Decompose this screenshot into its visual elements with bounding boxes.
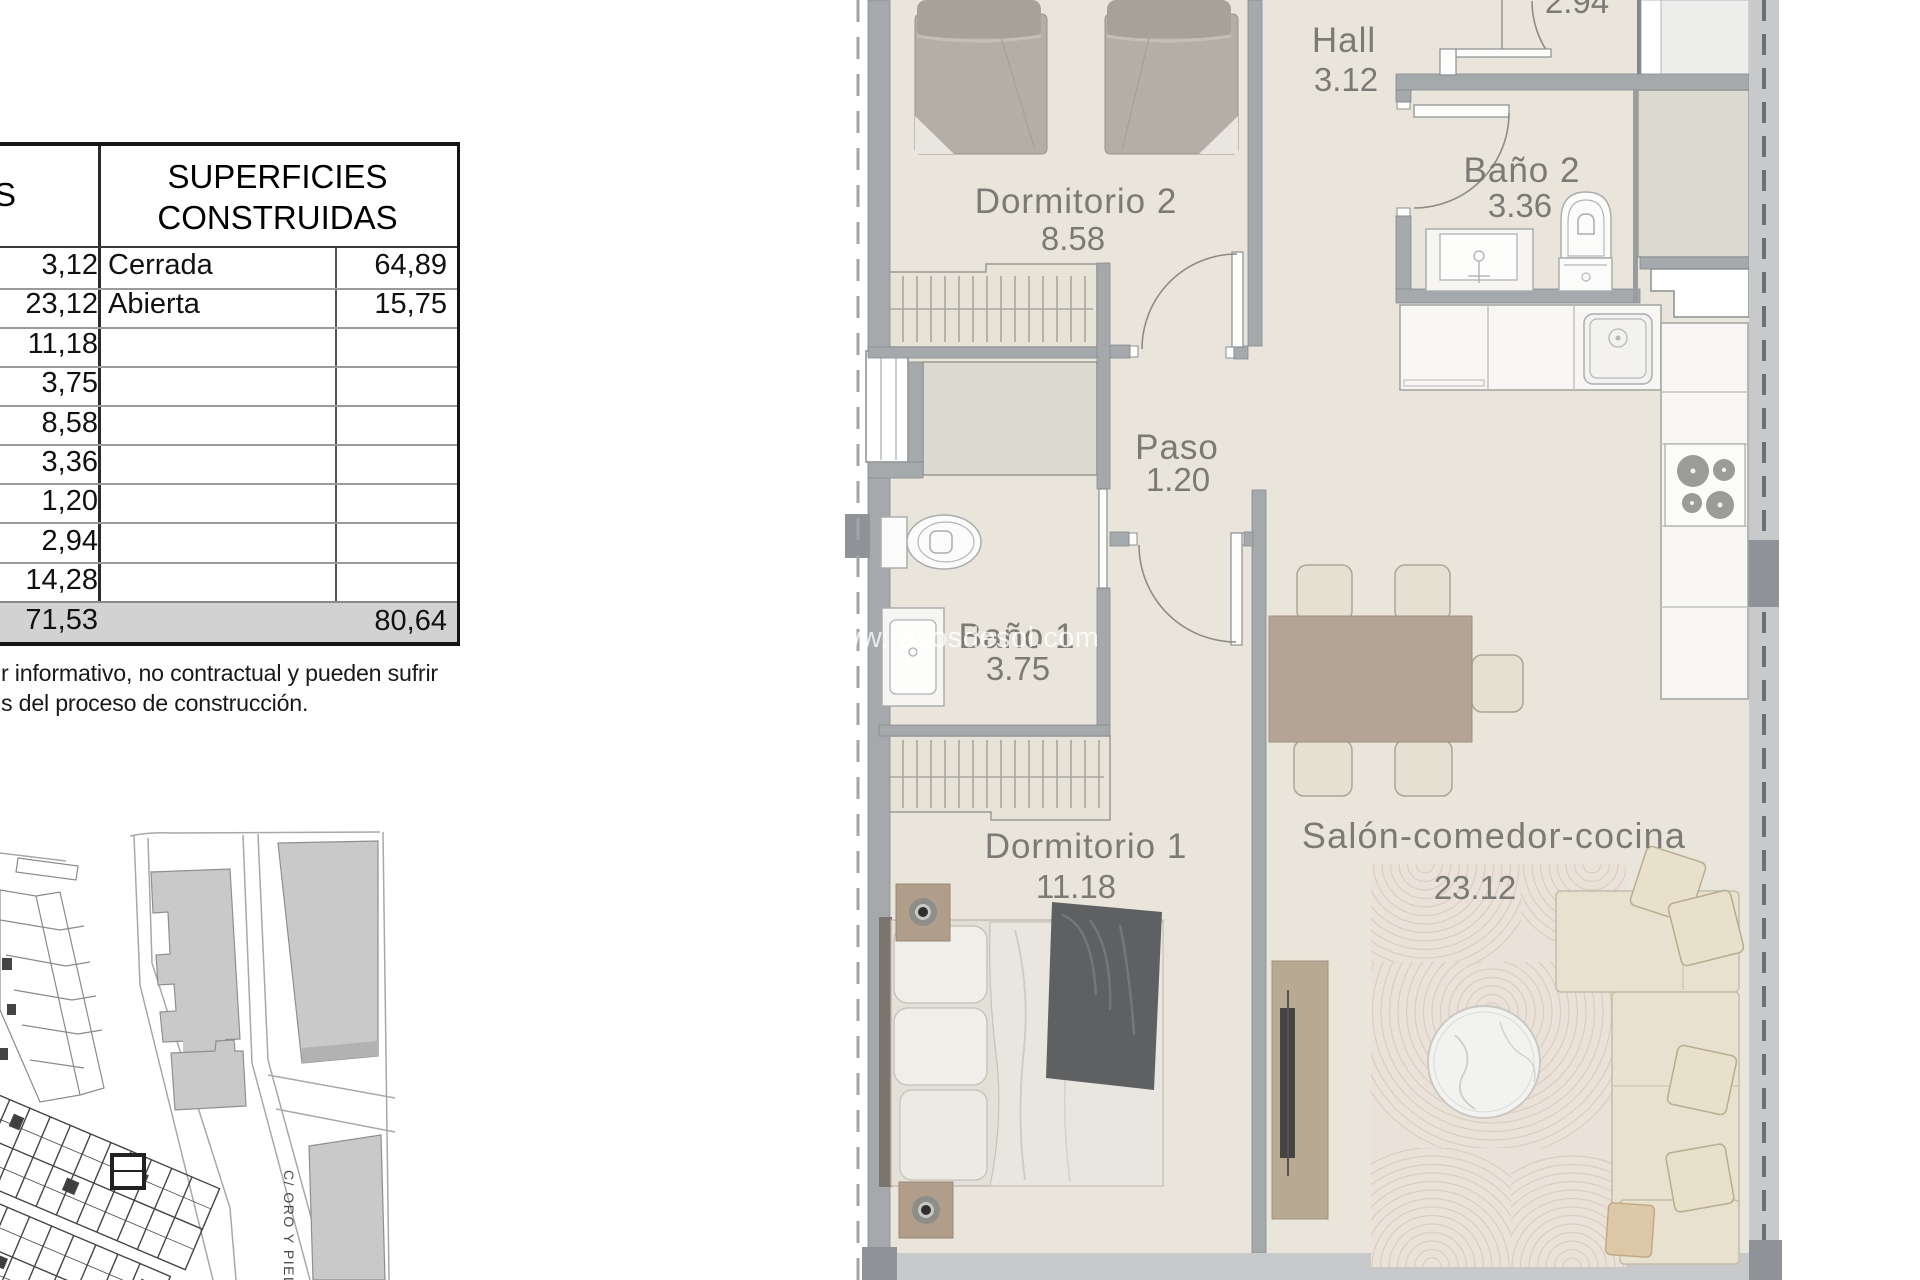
svg-text:Baño 2: Baño 2	[1464, 151, 1581, 190]
svg-text:1.20: 1.20	[1146, 461, 1210, 498]
svg-text:3.12: 3.12	[1314, 61, 1378, 98]
svg-text:Hall: Hall	[1312, 21, 1376, 60]
svg-text:11.18: 11.18	[1036, 868, 1116, 905]
svg-text:3.36: 3.36	[1488, 187, 1552, 224]
svg-text:3.75: 3.75	[986, 650, 1050, 687]
svg-text:Dormitorio 1: Dormitorio 1	[985, 827, 1188, 866]
svg-text:Salón-comedor-cocina: Salón-comedor-cocina	[1302, 815, 1686, 856]
svg-text:8.58: 8.58	[1041, 220, 1105, 257]
svg-text:C/ ORO Y PIEL: C/ ORO Y PIEL	[281, 1170, 297, 1280]
svg-text:2.94: 2.94	[1545, 0, 1609, 20]
svg-text:www.rayosdesol.com: www.rayosdesol.com	[817, 622, 1099, 654]
svg-text:23.12: 23.12	[1434, 869, 1517, 906]
svg-text:Dormitorio 2: Dormitorio 2	[975, 182, 1178, 221]
